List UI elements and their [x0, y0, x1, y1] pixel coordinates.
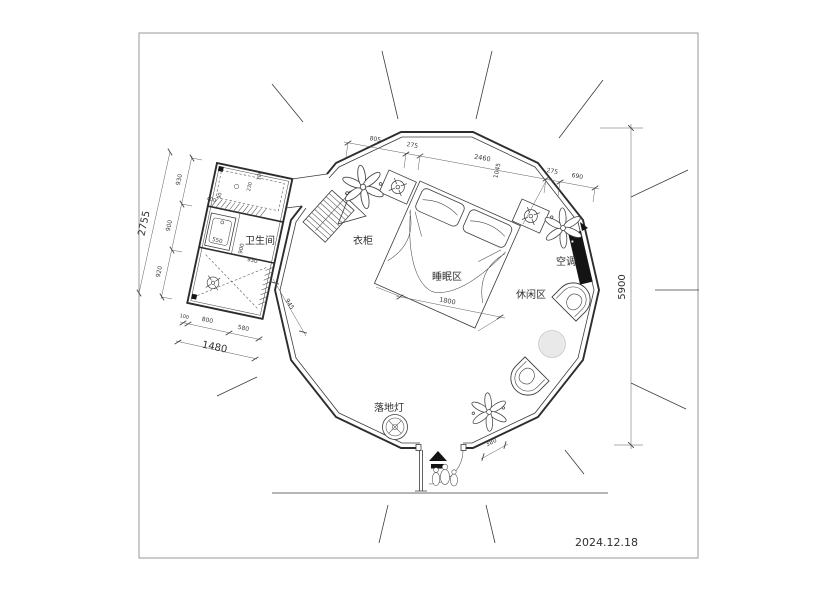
- wall-column: [218, 166, 224, 172]
- floor-lamp-symbol: [383, 415, 408, 440]
- nightstand-left: [379, 170, 416, 204]
- dim-bath-bottom-2: 800: [201, 316, 214, 325]
- dim-entry-side: 380: [485, 437, 499, 449]
- dim-bath-step: 945: [283, 298, 295, 312]
- dim-top-2: 275: [406, 141, 419, 150]
- bathroom-label: 卫生间: [245, 234, 275, 247]
- dim-bath-left-2: 900: [165, 219, 174, 232]
- dim-bath-left-3: 920: [155, 265, 164, 278]
- dim-shower-1: 400: [206, 196, 217, 204]
- entry-figure: [440, 470, 449, 485]
- armchair: [552, 276, 597, 321]
- dim-bath-bottom-total: 1480: [201, 340, 228, 356]
- door-post: [416, 445, 421, 451]
- date-label: 2024.12.18: [575, 536, 638, 549]
- wardrobe-label: 衣柜: [353, 234, 373, 247]
- entry-figure-head: [442, 464, 448, 470]
- dim-top-1: 805: [369, 135, 382, 144]
- floor-plan-drawing: 2024.12.18: [0, 0, 837, 592]
- entry-figure-head: [452, 470, 456, 474]
- dim-bath-bottom-3: 580: [237, 324, 250, 333]
- entry-group: [272, 445, 608, 494]
- bed-group: [374, 181, 520, 328]
- dim-overall-height: 5900: [617, 274, 628, 299]
- leisure-area-label: 休闲区: [516, 288, 546, 301]
- floor-lamp-label: 落地灯: [374, 401, 404, 414]
- floor-plan-page: 2024.12.18: [0, 0, 837, 592]
- entry-figure: [450, 474, 457, 486]
- dim-bath-bottom-1: 100: [179, 313, 190, 321]
- entry-figure: [432, 473, 440, 486]
- sleeping-area-label: 睡眠区: [432, 270, 462, 283]
- entry-figure-head: [434, 468, 439, 473]
- ac-label: 空调: [556, 255, 576, 268]
- armchair: [504, 357, 549, 402]
- door-frame-lines: [415, 450, 427, 491]
- dim-top-vertical: 1045: [493, 162, 503, 179]
- round-table: [539, 331, 566, 358]
- dim-top-5: 690: [571, 172, 584, 181]
- door-post: [461, 445, 466, 451]
- plant-icon: [464, 388, 514, 437]
- entry-arrow-icon: [429, 451, 447, 461]
- wall-column: [191, 294, 197, 300]
- dim-bath-left-1: 930: [175, 173, 184, 186]
- dim-top-3: 2460: [474, 153, 492, 164]
